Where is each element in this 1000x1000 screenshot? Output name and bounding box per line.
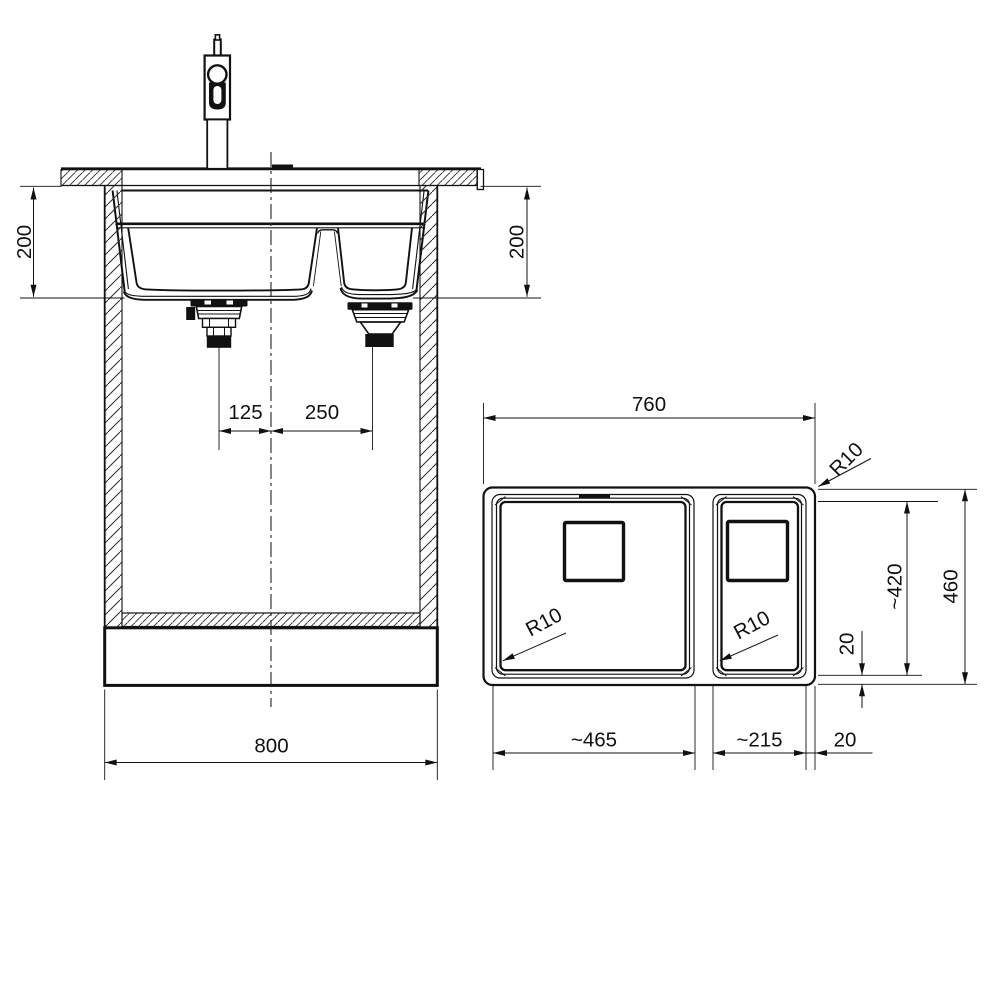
half-bowl-plan bbox=[713, 495, 806, 679]
sink-technical-drawing: 200 200 125 250 800 bbox=[0, 0, 1000, 1000]
drain-square bbox=[728, 522, 788, 581]
dim-label-side-rim: 20 bbox=[834, 729, 857, 752]
drain-overflow-port bbox=[186, 307, 195, 320]
front-dimensions: 200 200 125 250 800 bbox=[13, 186, 541, 780]
drain-flange-notch bbox=[227, 301, 234, 305]
dim-label-overall-length: 760 bbox=[632, 393, 666, 416]
accessory-hole-mark bbox=[272, 165, 293, 170]
dim-label-bowl-zone-depth: ~420 bbox=[884, 563, 907, 609]
drain-flange bbox=[348, 302, 413, 309]
bowl-bottom-inner bbox=[344, 283, 406, 290]
bowl-divider bbox=[313, 230, 341, 286]
dim-label-half-bowl-length: ~215 bbox=[736, 729, 782, 752]
main-bowl-drain bbox=[186, 299, 247, 348]
drain-flange-notch bbox=[392, 304, 398, 308]
bowl-bottom-inner bbox=[137, 283, 309, 291]
main-bowl-plan bbox=[492, 495, 694, 679]
dim-label-cabinet-width: 800 bbox=[254, 735, 288, 758]
dim-label-drain-offset-left: 125 bbox=[228, 401, 262, 424]
bowl-wall bbox=[128, 228, 136, 283]
drain-nut bbox=[365, 334, 393, 347]
drain-flange-notch bbox=[205, 301, 212, 305]
drain-funnel bbox=[360, 322, 400, 334]
plan-view: R10 R10 R10 760 46 bbox=[484, 393, 978, 770]
faucet-column bbox=[207, 120, 227, 169]
drain-tailpiece bbox=[207, 327, 231, 336]
dim-label-back-rim: 20 bbox=[836, 633, 859, 656]
cabinet-wall-right bbox=[420, 186, 437, 628]
drain-body bbox=[352, 310, 408, 322]
front-elevation-view: 200 200 125 250 800 bbox=[13, 35, 541, 780]
faucet-joint bbox=[208, 65, 226, 83]
drain-coupling bbox=[203, 319, 236, 328]
bowl-wall bbox=[338, 228, 344, 283]
countertop-right-section bbox=[419, 170, 477, 186]
cabinet-wall-left bbox=[105, 186, 122, 628]
radius-label-outer-corner: R10 bbox=[825, 438, 868, 481]
dim-label-main-bowl-length: ~465 bbox=[571, 729, 617, 752]
main-bowl bbox=[124, 228, 317, 300]
faucet-spout-slot bbox=[213, 86, 221, 104]
drain-flange-notch bbox=[362, 304, 368, 308]
dim-label-overall-depth: 460 bbox=[940, 569, 963, 603]
bowl-wall bbox=[406, 228, 412, 283]
dim-label-bowl-depth-left: 200 bbox=[13, 225, 36, 259]
drawing-svg: 200 200 125 250 800 bbox=[0, 0, 1000, 1000]
dim-label-bowl-depth-right: 200 bbox=[506, 225, 529, 259]
dim-label-drain-offset-right: 250 bbox=[305, 401, 339, 424]
drain-flange bbox=[191, 299, 248, 306]
half-bowl bbox=[338, 228, 417, 299]
faucet-lever-tip bbox=[215, 35, 219, 40]
half-bowl-drain bbox=[348, 302, 413, 347]
drain-square bbox=[565, 523, 624, 581]
overflow-mark bbox=[579, 495, 610, 499]
faucet-lever bbox=[214, 40, 221, 57]
bowl-bottom-outer-2 bbox=[124, 291, 312, 300]
faucet bbox=[205, 35, 230, 169]
bowl-wall bbox=[309, 228, 317, 283]
countertop-left-section bbox=[61, 170, 122, 186]
drain-body bbox=[196, 307, 241, 319]
